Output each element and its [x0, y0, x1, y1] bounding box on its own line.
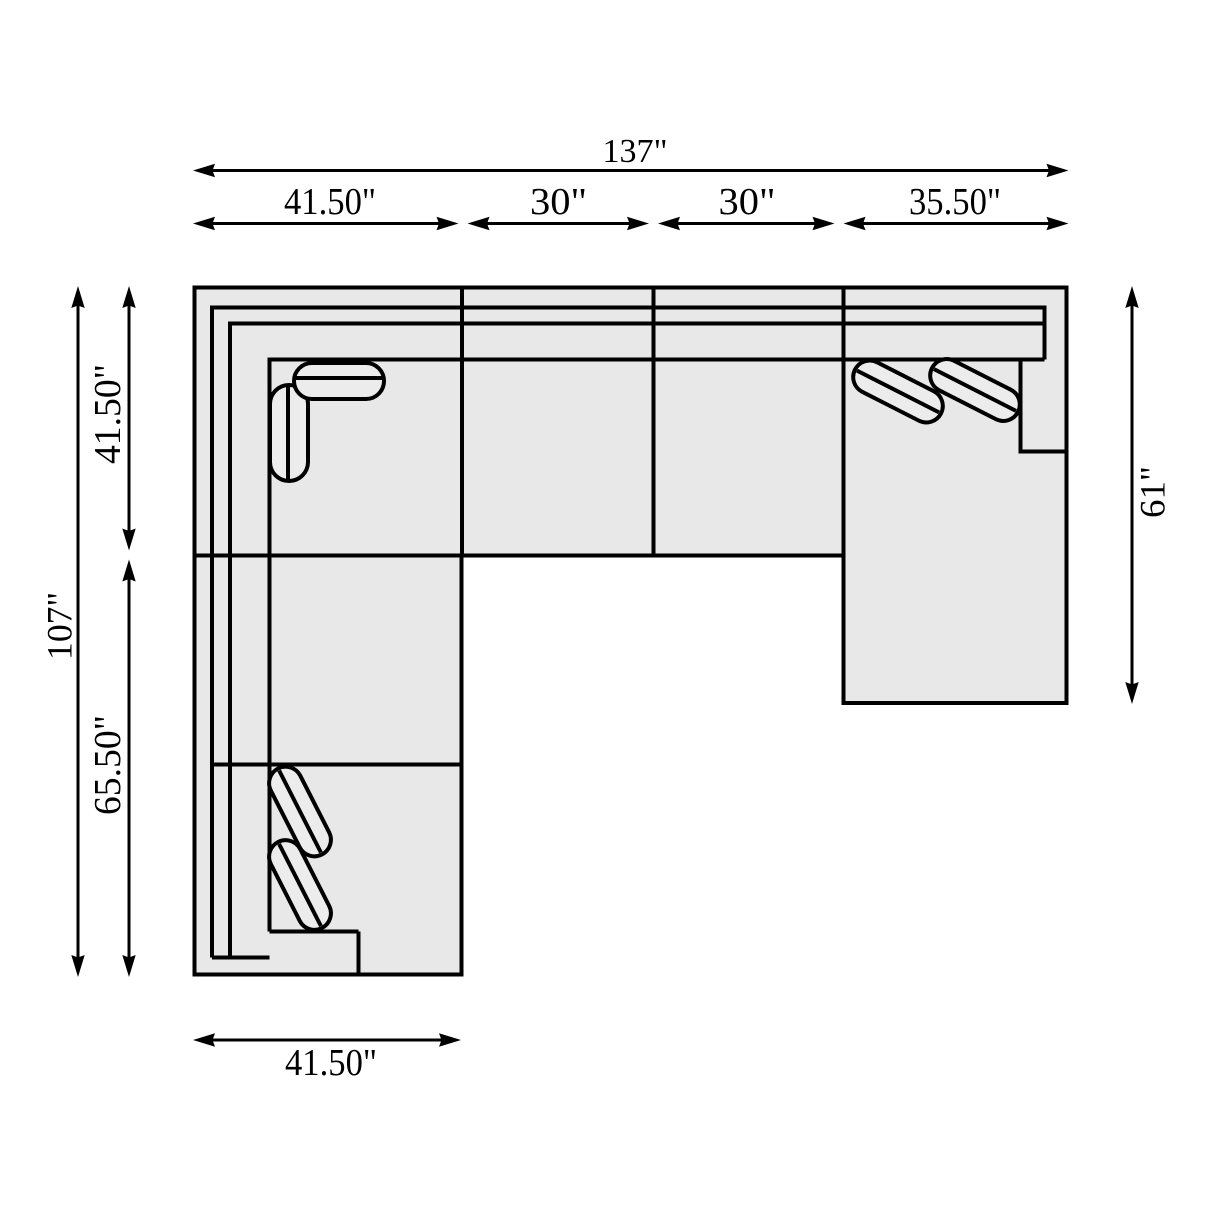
svg-text:41.50": 41.50" [284, 181, 376, 223]
svg-text:107": 107" [40, 592, 80, 660]
svg-text:137": 137" [603, 133, 668, 170]
svg-text:35.50": 35.50" [909, 181, 1001, 223]
svg-text:61": 61" [1133, 466, 1173, 518]
svg-text:41.50": 41.50" [87, 364, 129, 464]
svg-text:30": 30" [530, 181, 587, 223]
svg-text:30": 30" [719, 181, 776, 223]
svg-text:65.50": 65.50" [87, 715, 129, 815]
svg-text:41.50": 41.50" [285, 1042, 377, 1084]
